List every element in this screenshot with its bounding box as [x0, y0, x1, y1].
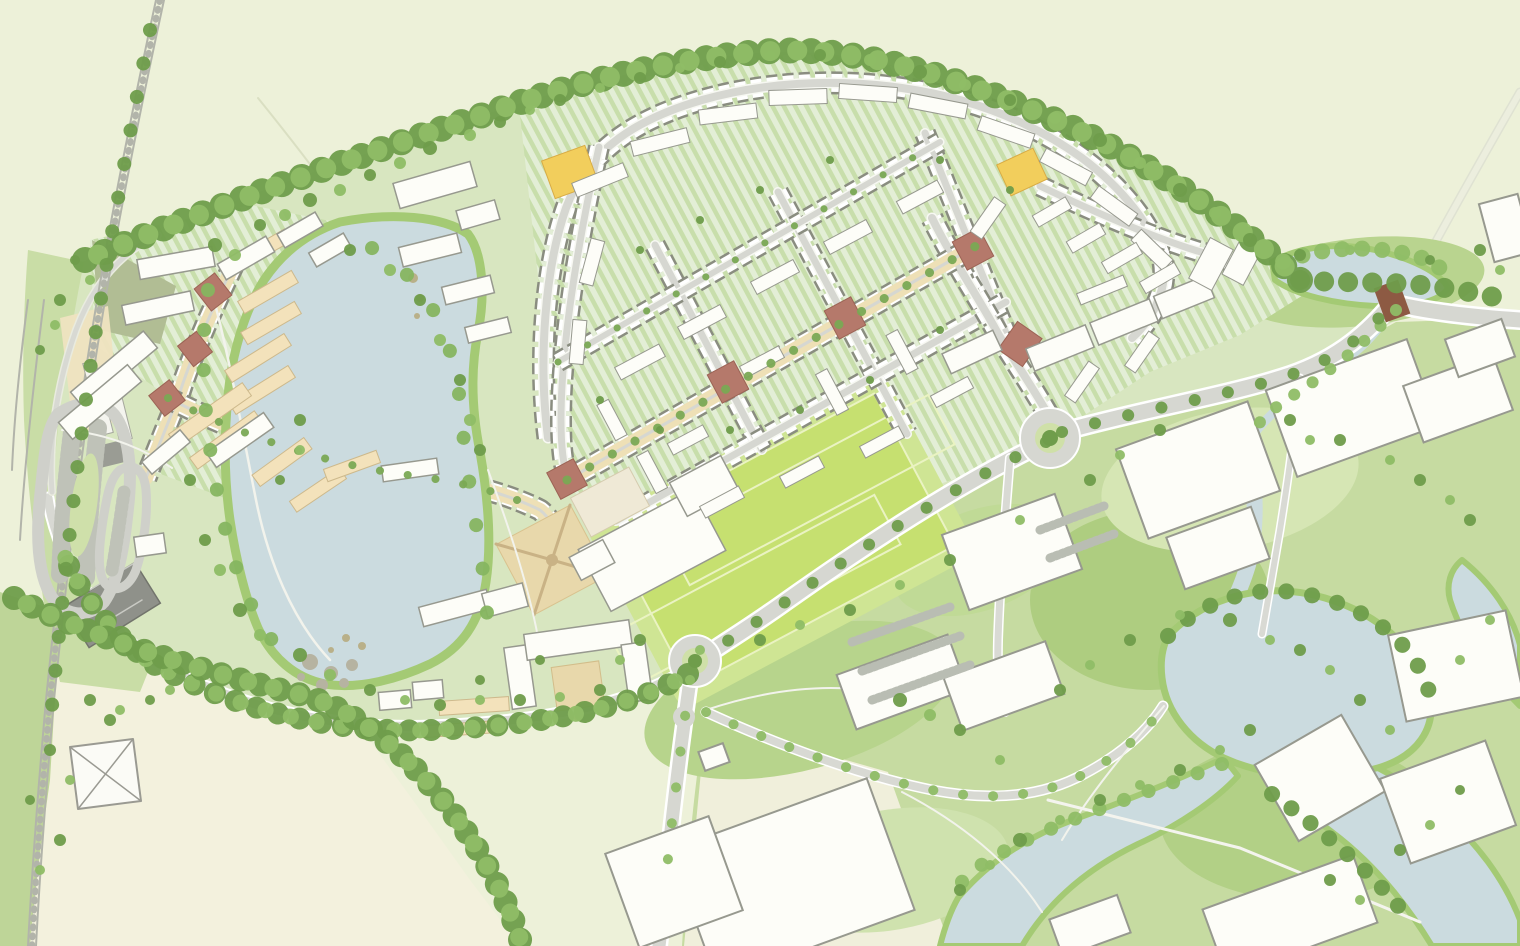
masterplan-stage: Illustrative development masterplan – ae…: [0, 0, 1520, 946]
school-plaza-centre: [546, 554, 558, 566]
masterplan-map: [0, 0, 1520, 946]
map-layers: [0, 0, 1520, 946]
